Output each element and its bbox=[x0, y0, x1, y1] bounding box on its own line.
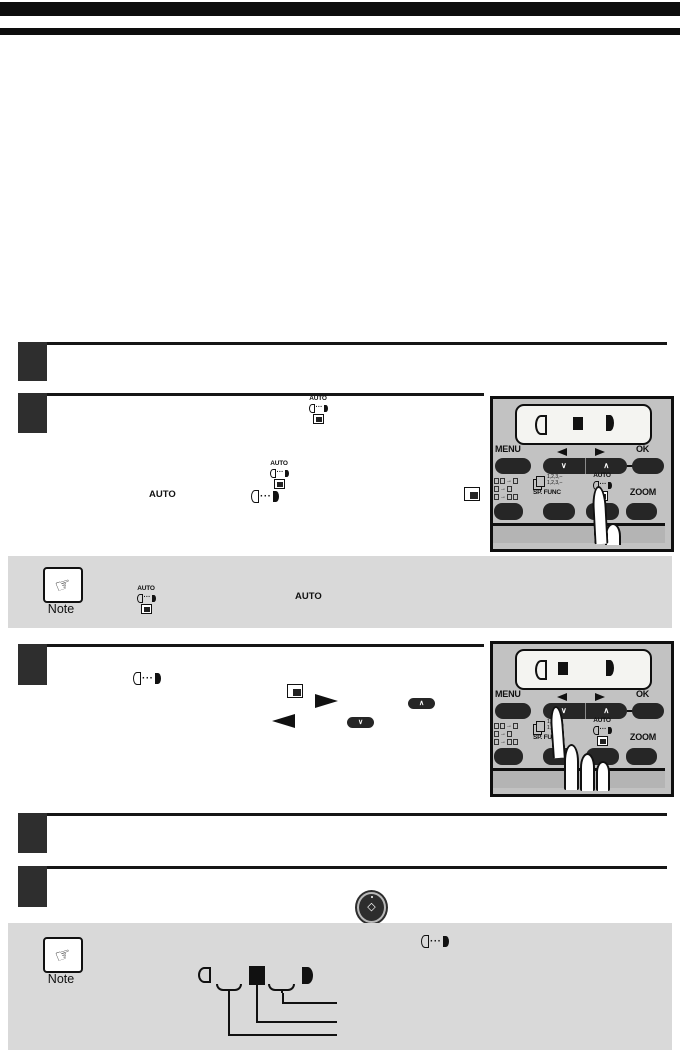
menu-button bbox=[495, 458, 531, 474]
header-bar-thick bbox=[0, 2, 680, 16]
photo-original-icon bbox=[464, 487, 480, 501]
dark-exposure-icon bbox=[606, 660, 614, 676]
arrow-glyph: → bbox=[500, 486, 506, 492]
step3-number-box bbox=[18, 644, 47, 685]
copies-sequence-text: 1,2,3,– bbox=[547, 481, 562, 487]
step5-rule bbox=[18, 866, 667, 869]
step2-rule bbox=[18, 393, 484, 396]
menu-button bbox=[495, 703, 531, 719]
pointing-hand-icon: ☞ bbox=[53, 574, 74, 596]
dots-icon: ··· bbox=[600, 728, 607, 732]
zoom-button bbox=[626, 503, 657, 520]
light-exposure-icon bbox=[535, 415, 547, 435]
dots-icon: ··· bbox=[277, 471, 284, 475]
auto-text: AUTO bbox=[593, 473, 611, 480]
menu-label: MENU bbox=[495, 445, 521, 454]
arrow-keys-button: ∨ ∧ bbox=[543, 458, 627, 474]
photo-original-icon bbox=[597, 736, 608, 746]
dark-half-icon bbox=[324, 405, 328, 412]
page-glyph bbox=[494, 478, 499, 484]
dark-half-icon bbox=[608, 727, 612, 734]
light-half-icon bbox=[270, 469, 276, 478]
dark-half-icon bbox=[155, 673, 161, 684]
dots-icon: ··· bbox=[260, 494, 272, 500]
sort-copies-icon bbox=[533, 476, 544, 489]
auto-exposure-stacked-icon: AUTO ··· bbox=[133, 586, 159, 614]
ok-label: OK bbox=[636, 445, 649, 454]
auto-mode-text: AUTO bbox=[295, 591, 322, 602]
dark-half-icon bbox=[608, 482, 612, 489]
callout-line bbox=[282, 1002, 337, 1004]
step2-number-box bbox=[18, 393, 47, 433]
dark-half-icon bbox=[285, 470, 289, 477]
light-half-icon bbox=[137, 594, 143, 603]
menu-label: MENU bbox=[495, 690, 521, 699]
duplex-icon-row: → bbox=[494, 493, 518, 501]
page-glyph bbox=[500, 723, 505, 729]
zoom-button bbox=[626, 748, 657, 765]
auto-text: AUTO bbox=[309, 396, 327, 403]
exposure-scale-icon: ··· bbox=[309, 404, 328, 413]
dots-icon: ··· bbox=[430, 939, 442, 945]
duplex-icon-row: → bbox=[494, 485, 518, 493]
step1-number-box bbox=[18, 342, 47, 381]
panel-front-strip bbox=[493, 771, 665, 788]
exposure-scale-icon: ··· bbox=[593, 726, 612, 735]
manual-page: AUTO ··· AUTO ··· AUTO ··· MENU OK ∨ ∧ bbox=[0, 0, 680, 1057]
step4-rule bbox=[18, 813, 667, 816]
callout-line bbox=[228, 993, 230, 1036]
sort-copies-icon bbox=[533, 721, 544, 734]
right-arrow-icon bbox=[595, 693, 605, 701]
zoom-label: ZOOM bbox=[621, 488, 665, 497]
page-glyph bbox=[507, 739, 512, 745]
page-glyph bbox=[513, 478, 518, 484]
auto-exposure-stacked-icon: AUTO ··· bbox=[266, 461, 292, 489]
down-key-icon: ∨ bbox=[347, 717, 374, 728]
right-arrow-icon bbox=[315, 694, 338, 708]
exposure-scale-icon: ··· bbox=[421, 935, 449, 948]
dots-icon: ··· bbox=[144, 596, 151, 600]
exposure-display bbox=[515, 404, 652, 445]
arrow-glyph: → bbox=[500, 739, 506, 745]
page-glyph bbox=[494, 739, 499, 745]
diamond-icon: ◇ bbox=[367, 902, 375, 913]
exposure-level-cursor bbox=[558, 662, 568, 675]
duplex-icon-row: → bbox=[494, 722, 518, 730]
dark-exposure-icon bbox=[606, 415, 614, 431]
zoom-label: ZOOM bbox=[621, 733, 665, 742]
duplex-icon-row: → bbox=[494, 738, 518, 746]
down-chevron-icon: ∨ bbox=[543, 458, 585, 474]
control-panel-illustration-2: MENU OK ∨ ∧ → → → 1,2,3,– 1,2,3,– SP. FU… bbox=[490, 641, 674, 797]
exposure-level-cursor bbox=[573, 417, 583, 430]
up-key-icon: ∧ bbox=[408, 698, 435, 709]
auto-text: AUTO bbox=[270, 461, 288, 468]
hand-finger bbox=[564, 744, 579, 790]
photo-original-icon bbox=[313, 414, 324, 424]
down-chevron-icon: ∨ bbox=[543, 703, 585, 719]
duplex-copy-icons: → → → bbox=[494, 722, 518, 746]
arrow-glyph: → bbox=[500, 731, 506, 737]
light-half-icon bbox=[421, 935, 429, 948]
exposure-display bbox=[515, 649, 652, 690]
page-glyph bbox=[494, 486, 499, 492]
auto-exposure-key-label: AUTO ··· bbox=[588, 718, 616, 746]
callout-line bbox=[228, 1034, 337, 1036]
duplex-icon-row: → bbox=[494, 730, 518, 738]
exposure-scale-icon: ··· bbox=[137, 594, 156, 603]
page-glyph bbox=[494, 731, 499, 737]
exposure-scale-icon: ··· bbox=[251, 490, 279, 503]
darker-range-brace bbox=[268, 984, 295, 991]
arrow-glyph: → bbox=[506, 478, 512, 484]
ok-button bbox=[632, 703, 664, 719]
step3-rule bbox=[18, 644, 484, 647]
auto-exposure-stacked-icon: AUTO ··· bbox=[305, 396, 331, 424]
page-glyph bbox=[513, 723, 518, 729]
duplex-icon-row: → bbox=[494, 477, 518, 485]
callout-line bbox=[256, 985, 258, 1023]
step1-rule bbox=[18, 342, 667, 345]
start-key-icon: ◇ bbox=[357, 892, 386, 923]
light-half-icon bbox=[251, 490, 259, 503]
page-glyph bbox=[494, 494, 499, 500]
exposure-scale-icon: ··· bbox=[133, 672, 161, 685]
header-bar-thin bbox=[0, 28, 680, 35]
photo-original-icon bbox=[287, 684, 303, 698]
left-arrow-icon bbox=[557, 448, 567, 456]
light-half-icon bbox=[309, 404, 315, 413]
photo-original-icon bbox=[274, 479, 285, 489]
left-arrow-icon bbox=[272, 714, 295, 728]
page-glyph bbox=[507, 731, 512, 737]
auto-text: AUTO bbox=[593, 718, 611, 725]
note-box-2: ☞ Note ··· bbox=[8, 923, 672, 1050]
light-half-icon bbox=[133, 672, 141, 685]
note-box-1: ☞ Note AUTO ··· AUTO bbox=[8, 556, 672, 628]
hand-finger bbox=[580, 753, 595, 791]
arrow-glyph: → bbox=[506, 723, 512, 729]
note-label: Note bbox=[43, 602, 79, 616]
light-exposure-icon bbox=[535, 660, 547, 680]
arrow-glyph: → bbox=[500, 494, 506, 500]
dots-icon: ··· bbox=[142, 676, 154, 682]
page-glyph bbox=[507, 494, 512, 500]
ok-label: OK bbox=[636, 690, 649, 699]
panel-front-strip bbox=[493, 526, 665, 543]
ok-button bbox=[632, 458, 664, 474]
sp-func-button bbox=[543, 503, 575, 520]
left-arrow-icon bbox=[557, 693, 567, 701]
auto-mode-text: AUTO bbox=[149, 489, 176, 500]
page-glyph bbox=[513, 494, 518, 500]
light-half-icon bbox=[593, 726, 599, 735]
dark-half-icon bbox=[152, 595, 156, 602]
lighter-range-brace bbox=[216, 984, 242, 991]
right-arrow-icon bbox=[595, 448, 605, 456]
page-glyph bbox=[513, 739, 518, 745]
note-icon: ☞ bbox=[43, 937, 83, 973]
step4-number-box bbox=[18, 813, 47, 853]
down-chevron-icon: ∨ bbox=[358, 719, 363, 726]
dark-half-icon bbox=[273, 491, 279, 502]
dark-exposure-symbol bbox=[302, 967, 313, 984]
exposure-cursor-symbol bbox=[249, 966, 265, 985]
duplex-button bbox=[494, 503, 523, 520]
pointing-hand-icon: ☞ bbox=[53, 944, 74, 966]
sp-func-label: SP. FUNC bbox=[533, 490, 561, 497]
callout-line bbox=[256, 1021, 337, 1023]
note-icon: ☞ bbox=[43, 567, 83, 603]
duplex-button bbox=[494, 748, 523, 765]
page-glyph bbox=[507, 486, 512, 492]
up-chevron-icon: ∧ bbox=[419, 700, 424, 707]
duplex-copy-icons: → → → bbox=[494, 477, 518, 501]
photo-original-icon bbox=[141, 604, 152, 614]
dark-half-icon bbox=[443, 936, 449, 947]
hand-finger bbox=[596, 761, 610, 791]
exposure-scale-icon: ··· bbox=[270, 469, 289, 478]
light-exposure-symbol bbox=[198, 967, 211, 983]
dots-icon: ··· bbox=[316, 406, 323, 410]
auto-text: AUTO bbox=[137, 586, 155, 593]
page-glyph bbox=[494, 723, 499, 729]
page-glyph bbox=[500, 478, 505, 484]
step5-number-box bbox=[18, 866, 47, 907]
control-panel-illustration-1: MENU OK ∨ ∧ → → → 1,2,3,– 1,2,3,– SP. FU… bbox=[490, 396, 674, 552]
note-label: Note bbox=[43, 972, 79, 986]
